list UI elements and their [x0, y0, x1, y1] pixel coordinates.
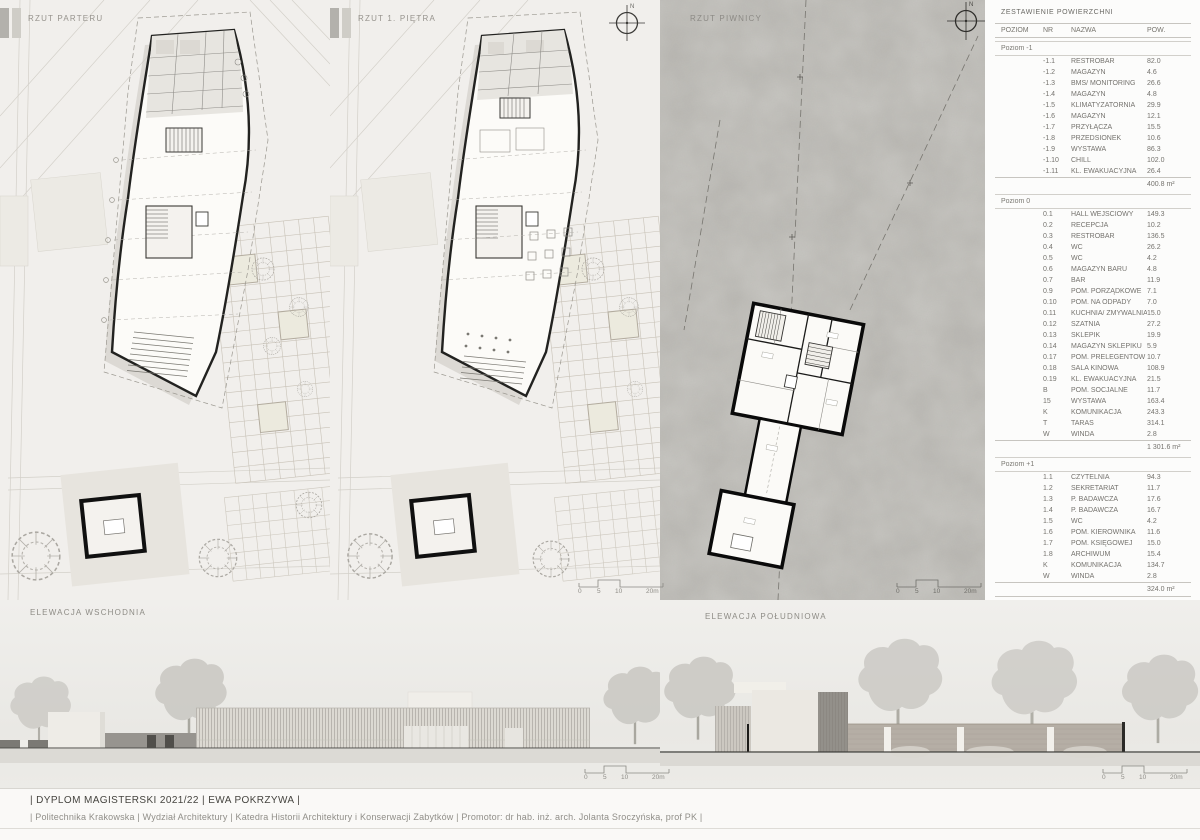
- elevation-title-east: ELEWACJA WSCHODNIA: [30, 608, 146, 617]
- table-row: 324.0 m²: [995, 582, 1191, 596]
- table-cell: 10.2: [1147, 222, 1191, 229]
- table-cell: KLIMATYZATORNIA: [1071, 102, 1147, 109]
- table-row: 0.18SALA KINOWA108.9: [995, 363, 1191, 374]
- table-row: 0.5WC4.2: [995, 253, 1191, 264]
- scale-label: 0: [584, 774, 588, 781]
- table-cell: 12.1: [1147, 113, 1191, 120]
- table-row: TTARAS314.1: [995, 418, 1191, 429]
- plan-title-basement: RZUT PIWNICY: [690, 14, 762, 23]
- table-cell: 5.9: [1147, 343, 1191, 350]
- table-cell: -1.10: [1043, 157, 1071, 164]
- col-pow: POW.: [1147, 27, 1191, 34]
- table-cell: KL. EWAKUACYJNA: [1071, 376, 1147, 383]
- presentation-board: N: [0, 0, 1200, 840]
- scale-label: 0: [1102, 774, 1106, 781]
- table-cell: WYSTAWA: [1071, 398, 1147, 405]
- table-cell: 1.4: [1043, 507, 1071, 514]
- table-cell: 4.8: [1147, 266, 1191, 273]
- table-cell: -1.8: [1043, 135, 1071, 142]
- table-cell: 21.5: [1147, 376, 1191, 383]
- table-cell: 0.10: [1043, 299, 1071, 306]
- table-cell: 19.9: [1147, 332, 1191, 339]
- table-cell: WC: [1071, 244, 1147, 251]
- table-cell: 16.7: [1147, 507, 1191, 514]
- table-cell: 2.8: [1147, 431, 1191, 438]
- table-cell: 243.3: [1147, 409, 1191, 416]
- scale-bar: 0 5 10 20m: [896, 578, 982, 596]
- table-cell: SKLEPIK: [1071, 332, 1147, 339]
- table-cell: POM. SOCJALNE: [1071, 387, 1147, 394]
- table-row: -1.10CHILL102.0: [995, 155, 1191, 166]
- table-row: -1.2MAGAZYN4.6: [995, 67, 1191, 78]
- table-cell: -1.6: [1043, 113, 1071, 120]
- table-row: 0.3RESTROBAR136.5: [995, 231, 1191, 242]
- table-row: Poziom -1: [995, 41, 1191, 56]
- table-cell: WC: [1071, 518, 1147, 525]
- table-cell: B: [1043, 387, 1071, 394]
- table-cell: SZATNIA: [1071, 321, 1147, 328]
- scale-label: 10: [933, 588, 940, 595]
- table-cell: -1.3: [1043, 80, 1071, 87]
- table-row: -1.8PRZEDSIONEK10.6: [995, 133, 1191, 144]
- table-row: -1.3BMS/ MONITORING26.6: [995, 78, 1191, 89]
- plan-title-first: RZUT 1. PIĘTRA: [358, 14, 436, 23]
- col-nazwa: NAZWA: [1071, 27, 1147, 34]
- table-cell: 0.19: [1043, 376, 1071, 383]
- table-cell: -1.2: [1043, 69, 1071, 76]
- table-cell: 26.2: [1147, 244, 1191, 251]
- table-cell: WINDA: [1071, 573, 1147, 580]
- table-row: -1.5KLIMATYZATORNIA29.9: [995, 100, 1191, 111]
- scale-label: 20m: [964, 588, 977, 595]
- scale-label: 20m: [652, 774, 665, 781]
- table-cell: MAGAZYN SKLEPIKU: [1071, 343, 1147, 350]
- table-row: 0.14MAGAZYN SKLEPIKU5.9: [995, 341, 1191, 352]
- table-cell: 15: [1043, 398, 1071, 405]
- table-cell: 10.6: [1147, 135, 1191, 142]
- table-cell: TARAS: [1071, 420, 1147, 427]
- table-cell: MAGAZYN: [1071, 91, 1147, 98]
- table-cell: 136.5: [1147, 233, 1191, 240]
- table-cell: 149.3: [1147, 211, 1191, 218]
- table-cell: W: [1043, 573, 1071, 580]
- table-cell: 4.8: [1147, 91, 1191, 98]
- table-row: 1 301.6 m²: [995, 440, 1191, 454]
- table-cell: 1.2: [1043, 485, 1071, 492]
- table-cell: Poziom -1: [995, 45, 1043, 52]
- table-cell: POM. PORZĄDKOWE: [1071, 288, 1147, 295]
- table-cell: 11.7: [1147, 485, 1191, 492]
- table-row: KKOMUNIKACJA243.3: [995, 407, 1191, 418]
- scale-bar-graphic: [578, 578, 664, 588]
- scale-label: 5: [597, 588, 601, 595]
- table-row: -1.7PRZYŁĄCZA15.5: [995, 122, 1191, 133]
- table-cell: 0.12: [1043, 321, 1071, 328]
- table-cell: 0.2: [1043, 222, 1071, 229]
- elevation-east: [0, 628, 660, 788]
- table-cell: 0.7: [1043, 277, 1071, 284]
- table-cell: Poziom +1: [995, 461, 1043, 468]
- table-cell: RESTROBAR: [1071, 58, 1147, 65]
- table-cell: 0.9: [1043, 288, 1071, 295]
- table-row: -1.4MAGAZYN4.8: [995, 89, 1191, 100]
- table-row: BPOM. SOCJALNE11.7: [995, 385, 1191, 396]
- table-cell: 163.4: [1147, 398, 1191, 405]
- ground-strip: [0, 749, 660, 763]
- pavilion: [390, 463, 519, 587]
- table-cell: 11.9: [1147, 277, 1191, 284]
- table-cell: POM. KSIĘGOWEJ: [1071, 540, 1147, 547]
- table-row: 0.7BAR11.9: [995, 275, 1191, 286]
- table-cell: KOMUNIKACJA: [1071, 562, 1147, 569]
- table-cell: 15.5: [1147, 124, 1191, 131]
- table-cell: K: [1043, 562, 1071, 569]
- table-row: WWINDA2.8: [995, 429, 1191, 440]
- table-cell: 94.3: [1147, 474, 1191, 481]
- plan-first-floor: N: [330, 0, 660, 608]
- table-row: 400.8 m²: [995, 177, 1191, 191]
- table-cell: WC: [1071, 255, 1147, 262]
- table-row: 1.7POM. KSIĘGOWEJ15.0: [995, 538, 1191, 549]
- table-cell: 2.8: [1147, 573, 1191, 580]
- table-cell: KOMUNIKACJA: [1071, 409, 1147, 416]
- scale-bar: 0 5 10 20m: [1102, 764, 1188, 782]
- table-title: ZESTAWIENIE POWIERZCHNI: [995, 6, 1191, 23]
- table-cell: HALL WEJŚCIOWY: [1071, 211, 1147, 218]
- table-cell: 0.11: [1043, 310, 1071, 317]
- scale-label: 20m: [646, 588, 659, 595]
- scale-label: 5: [603, 774, 607, 781]
- table-cell: Poziom 0: [995, 198, 1043, 205]
- scale-label: 5: [915, 588, 919, 595]
- table-cell: 26.6: [1147, 80, 1191, 87]
- table-cell: MAGAZYN: [1071, 113, 1147, 120]
- table-cell: -1.4: [1043, 91, 1071, 98]
- table-cell: MAGAZYN BARU: [1071, 266, 1147, 273]
- table-cell: 134.7: [1147, 562, 1191, 569]
- table-cell: 0.1: [1043, 211, 1071, 218]
- svg-text:N: N: [630, 4, 634, 10]
- table-row: 0.12SZATNIA27.2: [995, 319, 1191, 330]
- table-cell: 400.8 m²: [1147, 181, 1191, 188]
- table-row: 1.5WC4.2: [995, 516, 1191, 527]
- table-header: POZIOM NR NAZWA POW.: [995, 23, 1191, 38]
- table-row: -1.9WYSTAWA86.3: [995, 144, 1191, 155]
- table-row: 0.11KUCHNIA/ ZMYWALNIA15.0: [995, 308, 1191, 319]
- table-cell: 15.0: [1147, 540, 1191, 547]
- table-cell: P. BADAWCZA: [1071, 496, 1147, 503]
- table-row: -1.1RESTROBAR82.0: [995, 56, 1191, 67]
- scale-label: 10: [615, 588, 622, 595]
- project-title: | DYPLOM MAGISTERSKI 2021/22 | EWA POKRZ…: [30, 795, 300, 806]
- col-nr: NR: [1043, 27, 1071, 34]
- title-block-rule: [0, 828, 1200, 829]
- table-cell: -1.1: [1043, 58, 1071, 65]
- table-cell: 4.2: [1147, 518, 1191, 525]
- table-row: Poziom 0: [995, 194, 1191, 209]
- project-credits: | Politechnika Krakowska | Wydział Archi…: [30, 812, 702, 822]
- table-cell: PRZYŁĄCZA: [1071, 124, 1147, 131]
- scale-bar-graphic: [1102, 764, 1188, 774]
- scale-label: 20m: [1170, 774, 1183, 781]
- table-row: 0.1HALL WEJŚCIOWY149.3: [995, 209, 1191, 220]
- area-table: ZESTAWIENIE POWIERZCHNI POZIOM NR NAZWA …: [995, 6, 1191, 612]
- table-cell: 11.6: [1147, 529, 1191, 536]
- table-row: 0.2RECEPCJA10.2: [995, 220, 1191, 231]
- table-row: 0.9POM. PORZĄDKOWE7.1: [995, 286, 1191, 297]
- scale-bar: 0 5 10 20m: [578, 578, 664, 596]
- table-cell: 324.0 m²: [1147, 586, 1191, 593]
- table-cell: 102.0: [1147, 157, 1191, 164]
- table-cell: MAGAZYN: [1071, 69, 1147, 76]
- table-cell: 11.7: [1147, 387, 1191, 394]
- table-cell: 108.9: [1147, 365, 1191, 372]
- table-cell: WINDA: [1071, 431, 1147, 438]
- scale-bar: 0 5 10 20m: [584, 764, 670, 782]
- elevation-title-south: ELEWACJA POŁUDNIOWA: [705, 612, 827, 621]
- plan-ground-floor: [0, 0, 330, 608]
- area-table-rows: Poziom -1-1.1RESTROBAR82.0-1.2MAGAZYN4.6…: [995, 41, 1191, 612]
- table-row: 1.3P. BADAWCZA17.6: [995, 494, 1191, 505]
- pavilion: [60, 463, 189, 587]
- table-row: Poziom +1: [995, 457, 1191, 472]
- table-cell: -1.9: [1043, 146, 1071, 153]
- table-cell: 0.4: [1043, 244, 1071, 251]
- scale-bar-graphic: [584, 764, 670, 774]
- table-cell: 0.13: [1043, 332, 1071, 339]
- table-row: 0.6MAGAZYN BARU4.8: [995, 264, 1191, 275]
- table-cell: 0.17: [1043, 354, 1071, 361]
- table-row: 0.17POM. PRELEGENTÓW10.7: [995, 352, 1191, 363]
- table-cell: -1.7: [1043, 124, 1071, 131]
- table-cell: 7.1: [1147, 288, 1191, 295]
- table-cell: 314.1: [1147, 420, 1191, 427]
- table-cell: 82.0: [1147, 58, 1191, 65]
- table-row: 0.4WC26.2: [995, 242, 1191, 253]
- table-cell: -1.11: [1043, 168, 1071, 175]
- scale-label: 0: [896, 588, 900, 595]
- table-cell: POM. NA ODPADY: [1071, 299, 1147, 306]
- table-cell: 1.1: [1043, 474, 1071, 481]
- table-cell: SEKRETARIAT: [1071, 485, 1147, 492]
- table-cell: 1.7: [1043, 540, 1071, 547]
- table-row: 15WYSTAWA163.4: [995, 396, 1191, 407]
- table-cell: KL. EWAKUACYJNA: [1071, 168, 1147, 175]
- concrete-grain: [660, 0, 985, 608]
- table-cell: -1.5: [1043, 102, 1071, 109]
- scale-label: 5: [1121, 774, 1125, 781]
- table-cell: 4.2: [1147, 255, 1191, 262]
- table-cell: 0.6: [1043, 266, 1071, 273]
- table-row: 0.13SKLEPIK19.9: [995, 330, 1191, 341]
- table-cell: PRZEDSIONEK: [1071, 135, 1147, 142]
- table-cell: CZYTELNIA: [1071, 474, 1147, 481]
- table-cell: BMS/ MONITORING: [1071, 80, 1147, 87]
- table-cell: P. BADAWCZA: [1071, 507, 1147, 514]
- table-row: 1.4P. BADAWCZA16.7: [995, 505, 1191, 516]
- table-cell: ARCHIWUM: [1071, 551, 1147, 558]
- table-cell: T: [1043, 420, 1071, 427]
- plan-basement: N: [660, 0, 985, 608]
- table-cell: BAR: [1071, 277, 1147, 284]
- table-cell: 0.14: [1043, 343, 1071, 350]
- table-cell: RECEPCJA: [1071, 222, 1147, 229]
- table-cell: KUCHNIA/ ZMYWALNIA: [1071, 310, 1147, 317]
- table-cell: 27.2: [1147, 321, 1191, 328]
- table-cell: 17.6: [1147, 496, 1191, 503]
- title-block: | DYPLOM MAGISTERSKI 2021/22 | EWA POKRZ…: [0, 788, 1200, 840]
- plan-title-ground: RZUT PARTERU: [28, 14, 103, 23]
- table-cell: 0.18: [1043, 365, 1071, 372]
- table-cell: 1 301.6 m²: [1147, 444, 1191, 451]
- table-cell: K: [1043, 409, 1071, 416]
- table-row: -1.11KL. EWAKUACYJNA26.4: [995, 166, 1191, 177]
- table-row: -1.6MAGAZYN12.1: [995, 111, 1191, 122]
- table-cell: 15.4: [1147, 551, 1191, 558]
- col-poziom: POZIOM: [995, 27, 1043, 34]
- table-row: 0.19KL. EWAKUACYJNA21.5: [995, 374, 1191, 385]
- svg-text:N: N: [969, 2, 973, 8]
- table-cell: POM. PRELEGENTÓW: [1071, 354, 1147, 361]
- scale-label: 0: [578, 588, 582, 595]
- east-building: [0, 692, 590, 748]
- table-cell: 0.3: [1043, 233, 1071, 240]
- table-cell: RESTROBAR: [1071, 233, 1147, 240]
- scale-label: 10: [621, 774, 628, 781]
- table-cell: 15.0: [1147, 310, 1191, 317]
- table-cell: SALA KINOWA: [1071, 365, 1147, 372]
- table-cell: 29.9: [1147, 102, 1191, 109]
- table-row: WWINDA2.8: [995, 571, 1191, 582]
- table-cell: 0.5: [1043, 255, 1071, 262]
- table-cell: 10.7: [1147, 354, 1191, 361]
- table-cell: 1.6: [1043, 529, 1071, 536]
- table-row: 0.10POM. NA ODPADY7.0: [995, 297, 1191, 308]
- area-table-panel: ZESTAWIENIE POWIERZCHNI POZIOM NR NAZWA …: [985, 0, 1200, 608]
- table-cell: W: [1043, 431, 1071, 438]
- table-cell: 1.5: [1043, 518, 1071, 525]
- table-row: 1.8ARCHIWUM15.4: [995, 549, 1191, 560]
- scale-bar-graphic: [896, 578, 982, 588]
- table-row: 1.6POM. KIEROWNIKA11.6: [995, 527, 1191, 538]
- table-row: KKOMUNIKACJA134.7: [995, 560, 1191, 571]
- table-cell: 1.8: [1043, 551, 1071, 558]
- table-row: 1.2SEKRETARIAT11.7: [995, 483, 1191, 494]
- table-cell: 1.3: [1043, 496, 1071, 503]
- table-cell: CHILL: [1071, 157, 1147, 164]
- scale-label: 10: [1139, 774, 1146, 781]
- table-cell: POM. KIEROWNIKA: [1071, 529, 1147, 536]
- table-cell: 26.4: [1147, 168, 1191, 175]
- table-cell: 4.6: [1147, 69, 1191, 76]
- table-cell: 86.3: [1147, 146, 1191, 153]
- table-row: 1.1CZYTELNIA94.3: [995, 472, 1191, 483]
- table-cell: 7.0: [1147, 299, 1191, 306]
- elevations-band: ELEWACJA WSCHODNIA ELEWACJA POŁUDNIOWA: [0, 600, 1200, 788]
- table-cell: WYSTAWA: [1071, 146, 1147, 153]
